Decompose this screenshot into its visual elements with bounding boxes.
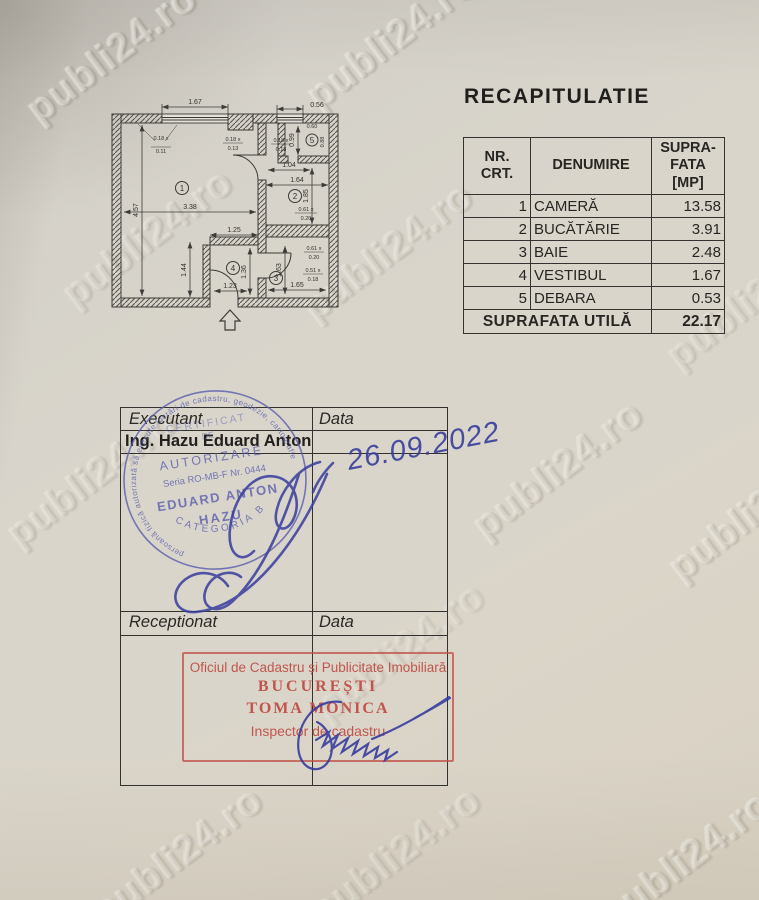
room-label-2: 2	[293, 192, 298, 201]
wall-dim: 0.13	[276, 147, 287, 153]
receptionat-label: Receptionat	[129, 613, 217, 632]
row-name: BUCĂTĂRIE	[531, 218, 652, 241]
dim-win1: 1.67	[188, 99, 202, 106]
pier-dim: 0.61 x	[307, 246, 322, 252]
dim-v3: 1.36	[241, 265, 248, 279]
pier-dim: 0.20	[309, 255, 320, 261]
wall-dim: 0.18 x	[154, 136, 169, 142]
dim-b2: 1.65	[290, 282, 304, 289]
red-stamp-line1: Oficiul de Cadastru și Publicitate Imobi…	[184, 660, 452, 675]
room-labels: 1 2 3 4 5	[176, 134, 319, 285]
table-footer-row: SUPRAFATA UTILĂ 22.17	[464, 310, 725, 334]
col-header-nr: NR. CRT.	[464, 138, 531, 195]
round-authorization-stamp: persoană fizică autorizată să execute lu…	[118, 386, 314, 578]
dim-d3: 0.88	[320, 137, 326, 148]
pier-dim: 0.51 x	[306, 268, 321, 274]
wall-dim: 0.11	[156, 149, 166, 155]
dim-k2: 1.64	[290, 177, 304, 184]
row-name: DEBARA	[531, 287, 652, 310]
wall-dim: 0.18 x	[274, 138, 289, 144]
pier-dim: 0.61 x	[299, 207, 314, 213]
row-line	[121, 635, 447, 636]
wall-dim: 0.13	[228, 146, 239, 152]
table-row: 2 BUCĂTĂRIE 3.91	[464, 218, 725, 241]
row-line	[121, 611, 447, 612]
page-title: RECAPITULATIE	[464, 85, 650, 109]
row-nr: 4	[464, 264, 531, 287]
recap-table: NR. CRT. DENUMIRE SUPRA- FATA [MP] 1 CAM…	[463, 137, 725, 334]
dim-v1: 1.25	[227, 227, 241, 234]
room-label-1: 1	[180, 184, 185, 193]
table-row: 3 BAIE 2.48	[464, 241, 725, 264]
entrance-arrow-icon	[220, 310, 240, 330]
pier-dim: 0.20	[301, 216, 312, 222]
total-value: 22.17	[652, 310, 725, 334]
dim-win2: 0.56	[310, 102, 324, 109]
dim-room1-w: 3.38	[183, 204, 197, 211]
row-area: 13.58	[652, 195, 725, 218]
dim-room1-h: 4.57	[133, 203, 140, 217]
wall-dim: 0.18 x	[226, 137, 241, 143]
row-area: 1.67	[652, 264, 725, 287]
red-office-stamp: Oficiul de Cadastru și Publicitate Imobi…	[182, 652, 454, 762]
dimension-lines	[124, 104, 328, 297]
row-nr: 3	[464, 241, 531, 264]
row-area: 3.91	[652, 218, 725, 241]
row-area: 0.53	[652, 287, 725, 310]
row-nr: 2	[464, 218, 531, 241]
executant-data-label: Data	[319, 410, 354, 429]
watermark: publi24.ro	[660, 434, 759, 591]
table-row: 1 CAMERĂ 13.58	[464, 195, 725, 218]
dim-v4: 1.44	[181, 263, 188, 277]
row-name: CAMERĂ	[531, 195, 652, 218]
row-name: BAIE	[531, 241, 652, 264]
table-row: 4 VESTIBUL 1.67	[464, 264, 725, 287]
red-stamp-line2: BUCUREȘTI	[184, 678, 452, 696]
receptionat-data-label: Data	[319, 613, 354, 632]
dim-v2: 1.23	[223, 283, 237, 290]
dim-d2: 0.60	[307, 124, 318, 130]
row-nr: 1	[464, 195, 531, 218]
stamp-line: DE	[201, 430, 215, 442]
floor-plan: 1.67 0.56 4.57 3.38 1.04 1.64 1.85 0.99 …	[80, 78, 360, 346]
table-row: 5 DEBARA 0.53	[464, 287, 725, 310]
row-area: 2.48	[652, 241, 725, 264]
row-nr: 5	[464, 287, 531, 310]
dim-k1: 1.04	[282, 162, 296, 169]
document-photo: publi24.ro publi24.ro publi24.ro publi24…	[0, 0, 759, 900]
watermark: publi24.ro	[592, 782, 759, 900]
room-label-5: 5	[310, 136, 315, 145]
room-label-4: 4	[231, 264, 236, 273]
watermark: publi24.ro	[302, 778, 490, 900]
red-stamp-line3: TOMA MONICA	[184, 700, 452, 718]
red-stamp-line4: Inspector de cadastru	[184, 723, 452, 739]
row-name: VESTIBUL	[531, 264, 652, 287]
watermark: publi24.ro	[84, 778, 272, 900]
dim-k3: 1.85	[303, 189, 310, 203]
col-header-suprafata: SUPRA- FATA [MP]	[652, 138, 725, 195]
room-label-3: 3	[274, 274, 279, 283]
pier-dim: 0.18	[308, 277, 319, 283]
col-header-denumire: DENUMIRE	[531, 138, 652, 195]
table-header-row: NR. CRT. DENUMIRE SUPRA- FATA [MP]	[464, 138, 725, 195]
total-label: SUPRAFATA UTILĂ	[464, 310, 652, 334]
dim-d1: 0.99	[289, 133, 296, 147]
watermark: publi24.ro	[464, 392, 652, 549]
